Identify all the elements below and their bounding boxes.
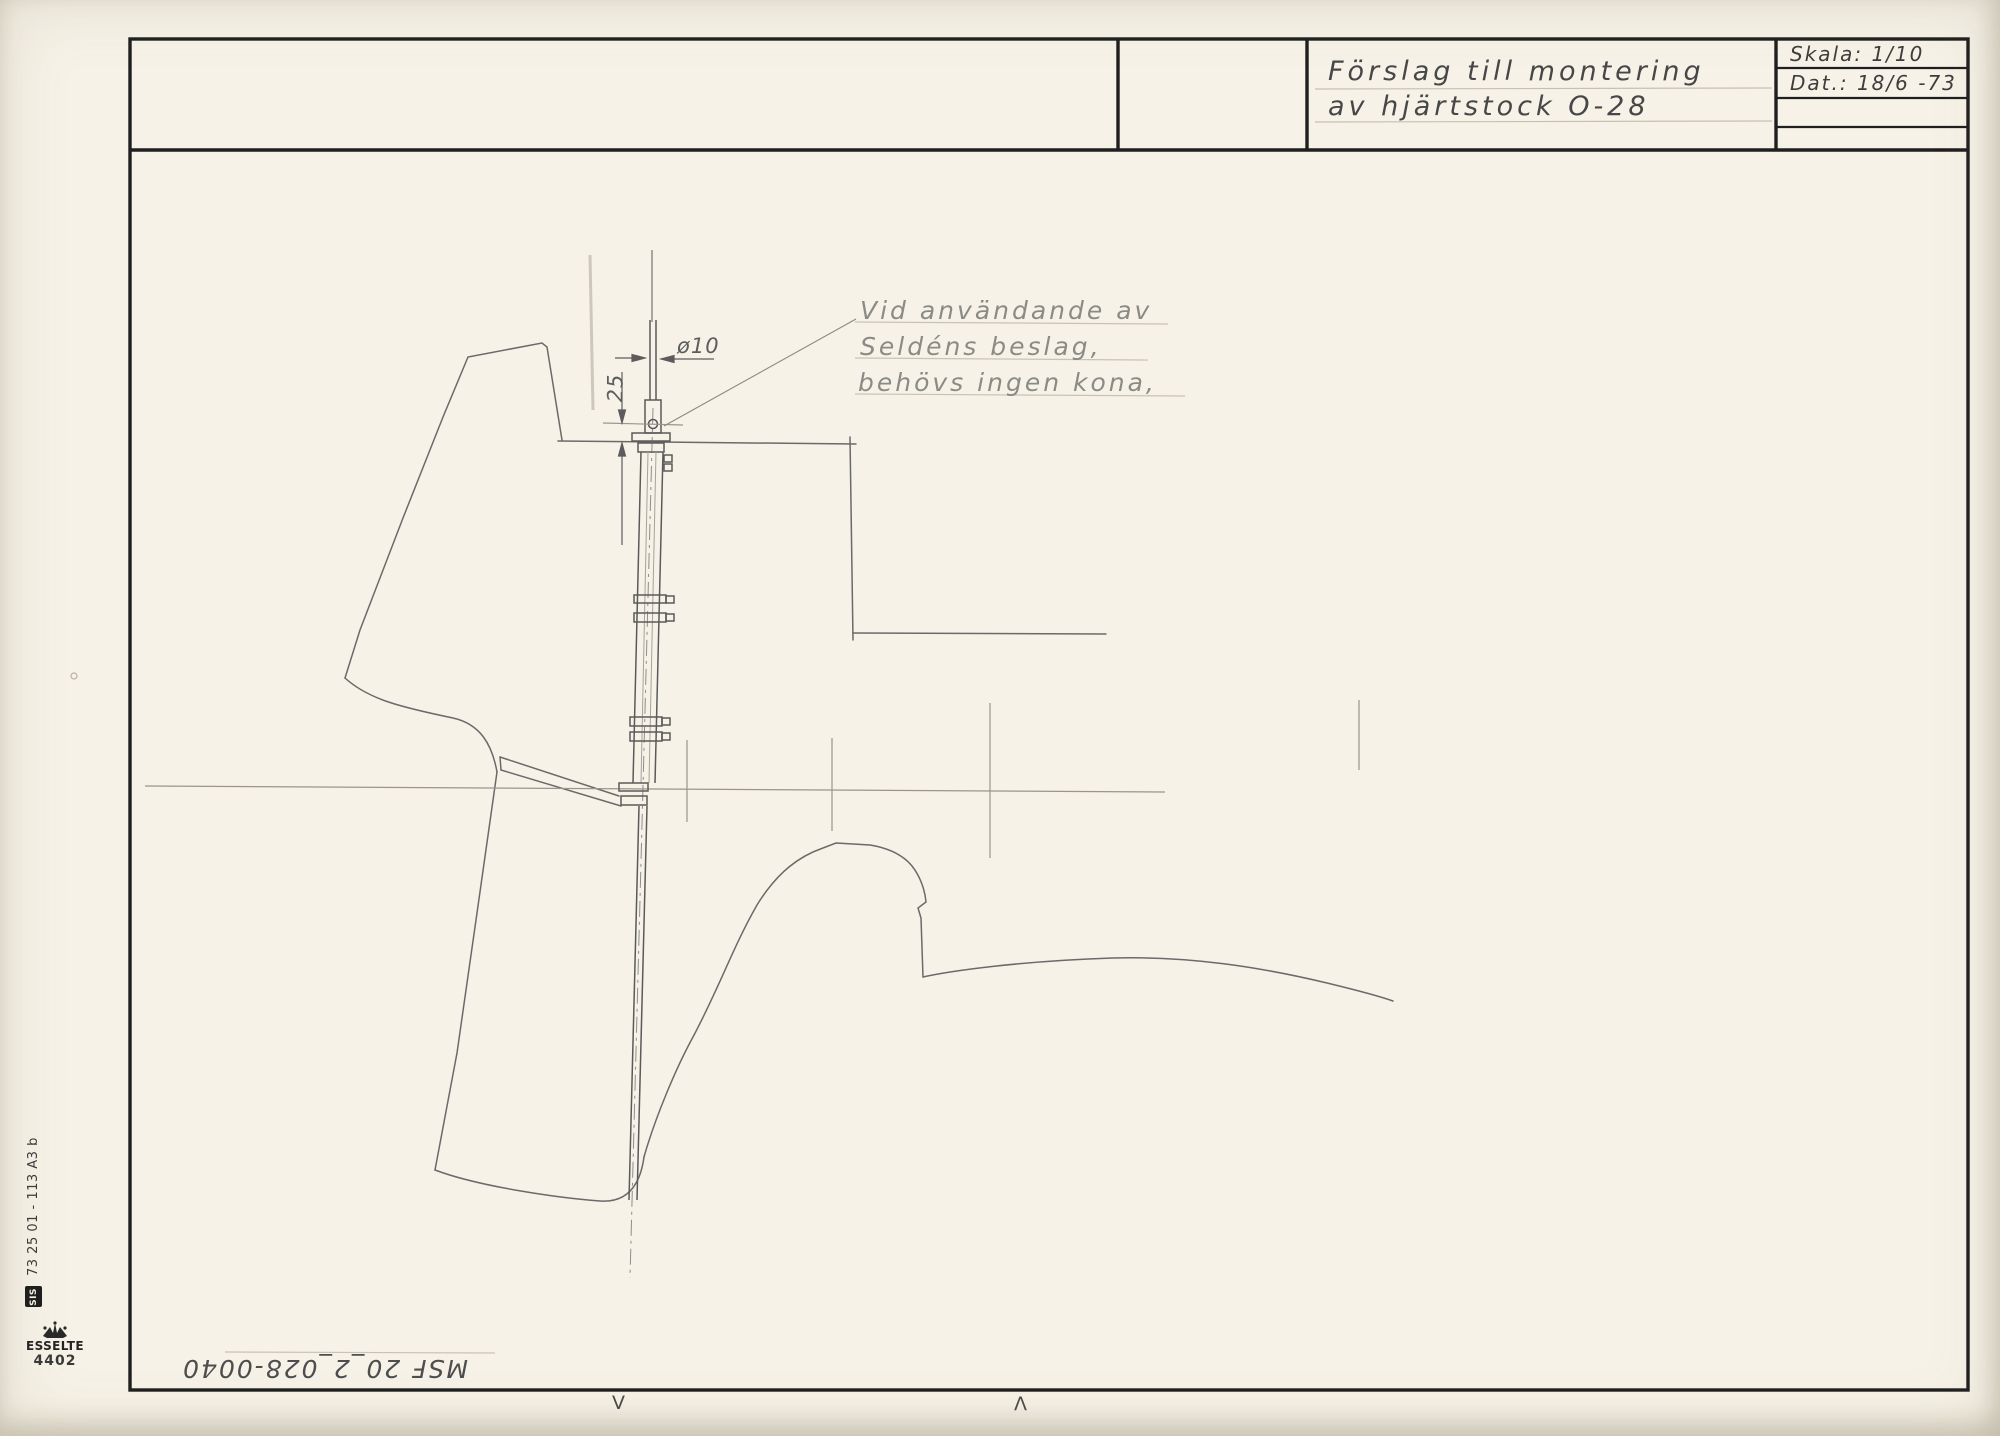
deck-flange: [632, 433, 670, 441]
waterline: [145, 786, 1165, 792]
clamp-ring: [634, 613, 666, 622]
document-number: MSF 20_2_028-0040: [218, 1354, 468, 1383]
registration-mark-lambda: Λ: [1014, 1393, 1027, 1415]
hull-profile: [345, 343, 1106, 1201]
sis-logo: SIS: [25, 1286, 42, 1307]
technical-drawing-canvas: [0, 0, 2000, 1436]
annotation-line3: behövs ingen kona,: [858, 368, 1157, 397]
drawing-title-line2: av hjärtstock O-28: [1328, 91, 1650, 122]
date-value: Dat.: 18/6 -73: [1790, 71, 1957, 95]
deck-collar: [638, 443, 664, 452]
offset-label: 25: [603, 374, 627, 403]
form-reference: 73 25 01 - 113 A3 b: [26, 1137, 41, 1276]
diameter-label: ø10: [677, 334, 720, 358]
esselte-crown-icon: [43, 1321, 67, 1338]
clamp-ring: [634, 595, 666, 603]
drawing-sheet: Förslag till montering av hjärtstock O-2…: [0, 0, 2000, 1436]
esselte-form-number: 4402: [20, 1353, 90, 1369]
rudder-outline: [644, 843, 1393, 1157]
hull-bracket: [619, 783, 648, 791]
esselte-brand-name: ESSELTE: [20, 1340, 90, 1353]
margin-marks: [71, 673, 495, 1353]
annotation-line2: Seldéns beslag,: [860, 332, 1102, 361]
scale-value: Skala: 1/10: [1790, 42, 1924, 66]
sis-logo-text: SIS: [29, 1288, 39, 1306]
station-ticks: [687, 700, 1359, 858]
registration-mark-v: V: [612, 1392, 625, 1414]
stock-centerline: [630, 408, 653, 1278]
erased-pencil-line: [590, 255, 593, 410]
esselte-stamp: ESSELTE 4402: [20, 1340, 90, 1369]
border-frame: [130, 39, 1968, 1390]
drawing-title-line1: Förslag till montering: [1328, 56, 1705, 87]
rudder-stock: [590, 250, 674, 1278]
annotation-line1: Vid användande av: [860, 296, 1152, 325]
